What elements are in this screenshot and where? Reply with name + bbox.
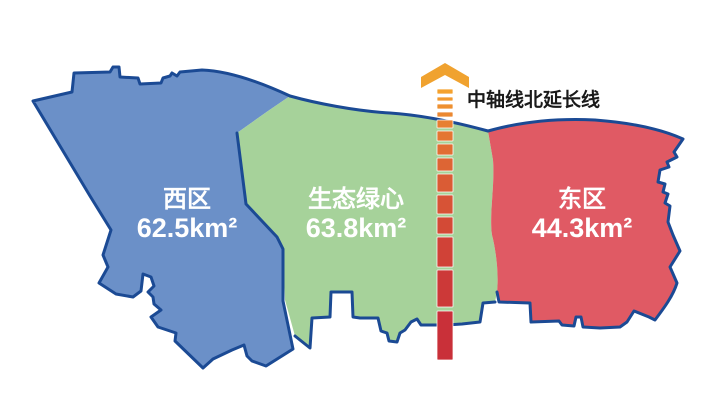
axis-dash-segment bbox=[437, 131, 453, 141]
axis-arrow-icon bbox=[421, 63, 469, 88]
axis-dash-segment bbox=[437, 174, 453, 192]
green-heart-area: 63.8km² bbox=[306, 213, 407, 243]
west-district-area: 62.5km² bbox=[137, 213, 238, 243]
axis-dash-segment bbox=[437, 104, 453, 109]
axis-dash-segment bbox=[437, 144, 453, 155]
map-canvas: 中轴线北延长线 西区 62.5km² 生态绿心 63.8km² 东区 44.3k… bbox=[0, 0, 718, 407]
east-district-area: 44.3km² bbox=[532, 213, 633, 243]
west-district-name: 西区 bbox=[163, 186, 211, 213]
axis-dash-segment bbox=[437, 237, 453, 267]
east-district-name: 东区 bbox=[558, 185, 606, 213]
axis-label: 中轴线北延长线 bbox=[467, 88, 600, 111]
axis-dash-segment bbox=[437, 120, 453, 128]
axis-dash-segment bbox=[437, 97, 453, 101]
district-map-figure: 中轴线北延长线 西区 62.5km² 生态绿心 63.8km² 东区 44.3k… bbox=[0, 0, 718, 407]
axis-dash-segment bbox=[437, 217, 453, 234]
green-heart-name: 生态绿心 bbox=[308, 185, 404, 213]
axis-dash-segment bbox=[437, 311, 453, 360]
axis-dash-segment bbox=[437, 112, 453, 117]
axis-dash-segment bbox=[437, 158, 453, 171]
axis-dash-segment bbox=[437, 270, 453, 307]
axis-dash-segment bbox=[437, 89, 453, 94]
axis-dash-segment bbox=[437, 195, 453, 214]
